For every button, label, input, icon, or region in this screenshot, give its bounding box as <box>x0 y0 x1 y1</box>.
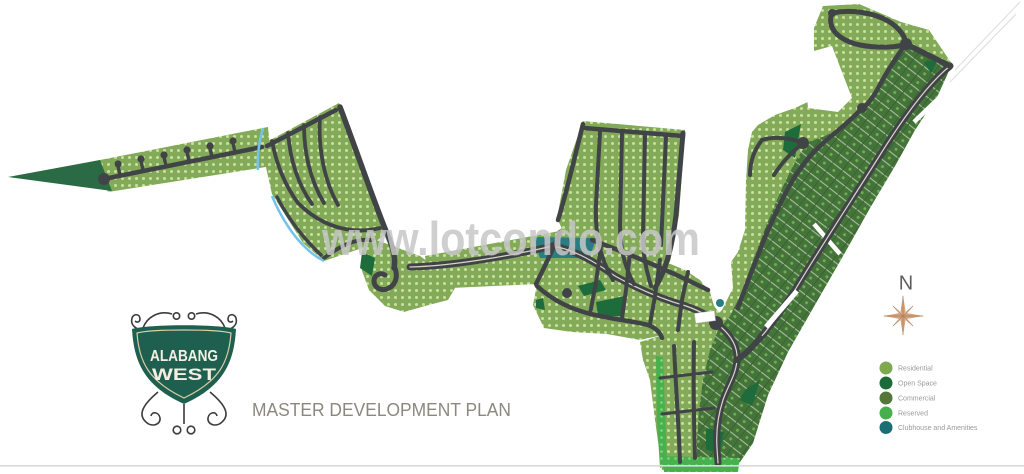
svg-text:ALABANG: ALABANG <box>150 348 218 365</box>
svg-text:N: N <box>899 273 913 295</box>
svg-text:Open Space: Open Space <box>898 381 937 388</box>
svg-text:Residential: Residential <box>898 366 933 373</box>
svg-text:MASTER DEVELOPMENT PLAN: MASTER DEVELOPMENT PLAN <box>252 399 511 420</box>
svg-text:Commercial: Commercial <box>898 396 936 403</box>
svg-text:Clubhouse and Amenities: Clubhouse and Amenities <box>898 425 978 432</box>
svg-text:WEST: WEST <box>152 366 216 384</box>
svg-text:www.lotcondo.com: www.lotcondo.com <box>321 212 700 265</box>
svg-text:Reserved: Reserved <box>898 411 928 418</box>
